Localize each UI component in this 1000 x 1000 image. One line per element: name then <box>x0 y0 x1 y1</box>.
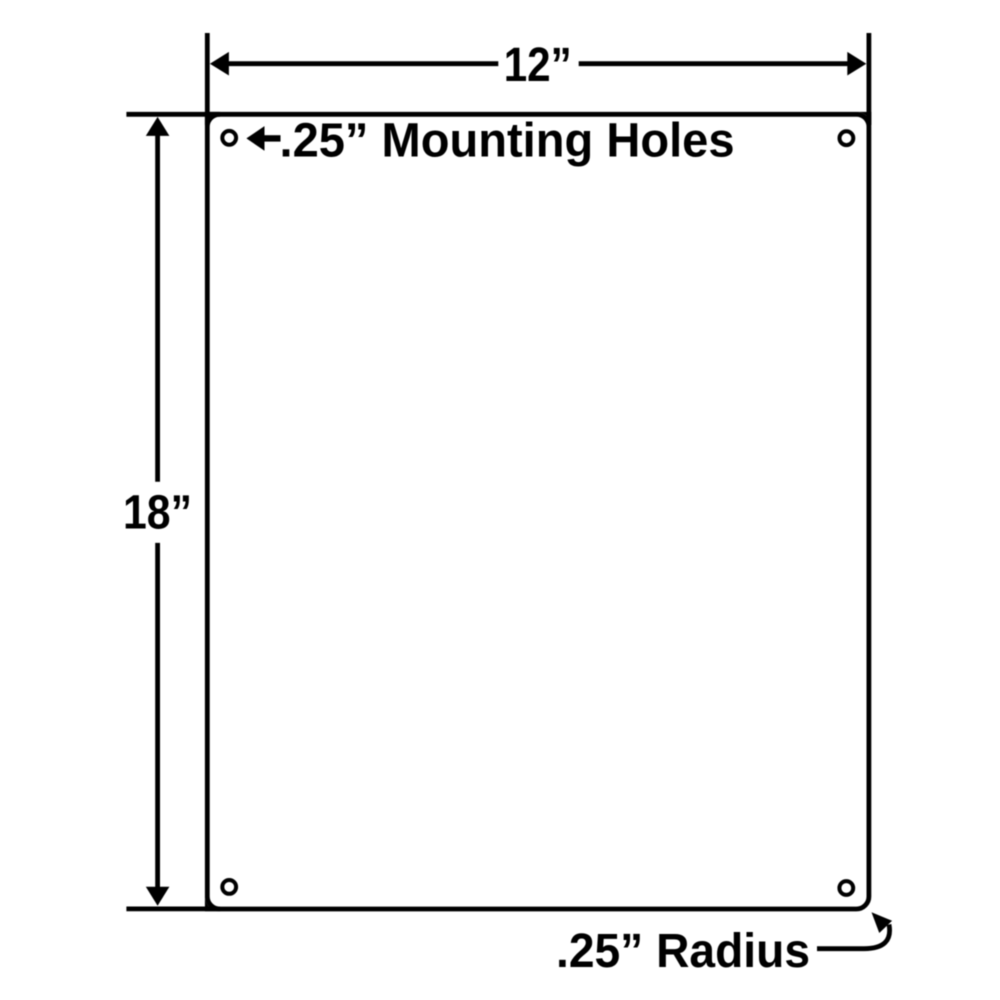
svg-text:18”: 18” <box>123 487 192 540</box>
svg-text:12”: 12” <box>504 39 572 92</box>
svg-text:.25” Radius: .25” Radius <box>556 925 810 978</box>
svg-text:.25” Mounting Holes: .25” Mounting Holes <box>280 115 735 168</box>
